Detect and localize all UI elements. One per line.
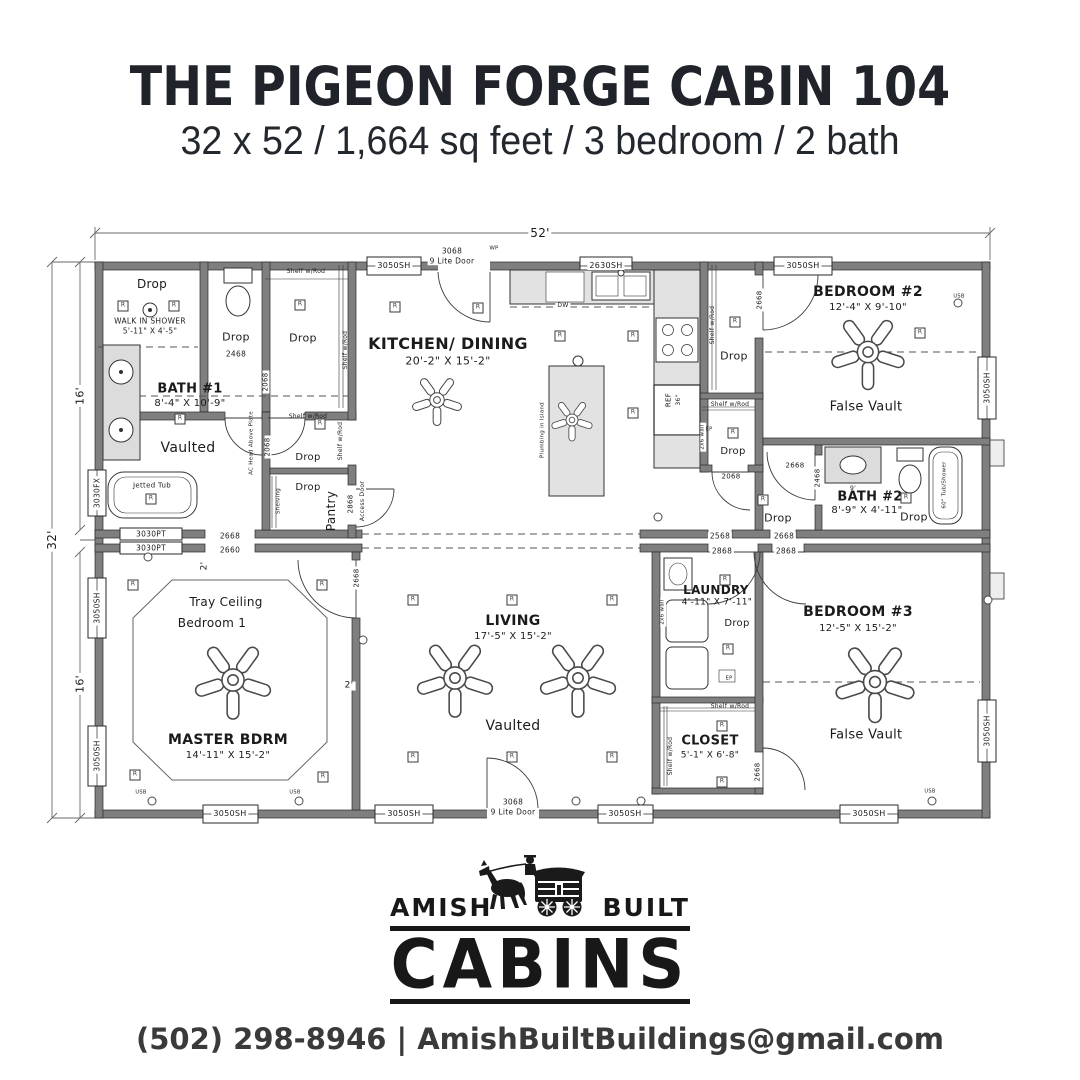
outlet-icon [954,299,963,308]
plan-label: 2468 [815,466,822,489]
recessed-light-icon: R [146,494,157,505]
plan-label: Access Door [360,479,366,523]
plan-label: REF [666,393,673,407]
plan-label: USB [289,791,300,796]
recessed-light-icon: R [915,328,926,339]
recessed-light-icon: R [720,575,731,586]
recessed-light-icon: R [728,428,739,439]
plan-label: 2068 [263,370,270,393]
plan-label: 60" Tub/Shower [942,461,948,508]
plan-label: BEDROOM #3 [803,605,913,619]
plan-label: 9 Lite Door [489,808,538,816]
plan-label: WP [489,246,498,252]
plan-label: LIVING [485,614,540,628]
plan-label: 2068 [265,435,272,458]
plan-label: 3050SH [375,262,412,270]
plan-label: 2' [343,682,356,691]
recessed-light-icon: R [315,419,326,430]
plan-label: USB [135,791,146,796]
plan-label: 8'-4" X 10'-9" [154,399,225,409]
plan-label: Bedroom 1 [178,617,246,629]
plan-label: 3050SH [93,738,101,773]
plan-label: BEDROOM #2 [813,285,923,299]
ceiling-fan-icon [416,643,494,717]
recessed-light-icon: R [169,301,180,312]
ceiling-fan-icon [194,645,272,719]
recessed-light-icon: R [758,495,769,506]
plan-label: Tray Ceiling [189,596,262,608]
plan-label: BATH #1 [157,383,222,396]
plan-label: 3050SH [211,810,248,818]
plan-label: Drop [295,483,320,493]
plan-label: Shelf w/Rod [711,704,750,710]
plan-label: 2668 [218,532,242,540]
plan-label: CLOSET [681,735,738,748]
plan-label: 3050SH [850,810,887,818]
plan-label: Jetted Tub [133,483,171,490]
recessed-light-icon: R [318,772,329,783]
recessed-light-icon: R [717,721,728,732]
plan-label: 9' [850,486,856,492]
plan-label: Pantry [325,491,337,531]
plan-label: 17'-5" X 15'-2" [474,632,552,642]
plan-label: Drop [724,619,749,629]
plan-label: 2668 [772,532,796,540]
plan-label: 3030PT [134,530,168,538]
outlet-icon [148,797,157,806]
outlet-icon [359,636,368,645]
recessed-light-icon: R [607,752,618,763]
plan-label: 5'-1" X 6'-8" [681,752,739,761]
outlet-icon [928,797,937,806]
recessed-light-icon: R [723,644,734,655]
plan-label: 12'-5" X 15'-2" [819,624,897,634]
recessed-light-icon: R [901,493,912,504]
plan-label: 52' [528,227,551,239]
plan-label: 3050SH [983,370,991,405]
recessed-light-icon: R [607,595,618,606]
plan-label: Shelf w/Rod [287,269,326,275]
recessed-light-icon: R [717,777,728,788]
plan-label: AC Head Above Plate [249,411,255,475]
plan-label: MASTER BDRM [168,733,288,747]
poster: THE PIGEON FORGE CABIN 104 32 x 52 / 1,6… [0,0,1080,1080]
plan-label: Vaulted [161,441,216,455]
ceiling-fan-icon [412,377,463,425]
plan-label: False Vault [830,729,903,742]
recessed-light-icon: R [628,408,639,419]
plan-label: Drop [295,453,320,463]
recessed-light-icon: R [507,752,518,763]
recessed-light-icon: R [317,580,328,591]
outlet-icon [144,553,153,562]
plan-label: 3030FX [93,476,101,510]
recessed-light-icon: R [175,414,186,425]
plan-label: 2668 [354,566,361,589]
plan-label: Drop [764,513,792,524]
outlet-icon [295,797,304,806]
ceiling-fan-icon [831,318,906,389]
plan-label: 2668 [755,760,762,783]
logo-word-cabins: CABINS [391,931,690,999]
plan-label: 2x6 wall [660,597,666,626]
plan-label: 14'-11" X 15'-2" [186,751,270,761]
plan-label: Drop [289,333,317,344]
plan-label: 2630SH [587,262,624,270]
ceiling-fan-icon [539,643,617,717]
recessed-light-icon: R [130,770,141,781]
plan-label: 20'-2" X 15'-2" [405,356,490,367]
plan-label: Shelf w/Rod [343,331,349,370]
logo-top-row: AMISH [390,854,690,924]
plan-label: 12'-4" X 9'-10" [829,303,907,313]
outlet-icon [654,513,663,522]
logo-word-built: BUILT [602,893,690,922]
outlet-icon [572,797,581,806]
horse-and-wagon-icon [477,850,603,927]
recessed-light-icon: R [473,303,484,314]
outlet-icon [984,596,993,605]
plan-label: DW [555,303,570,309]
plan-label: USB [924,790,935,795]
brand-logo: AMISH [0,854,1080,1004]
recessed-light-icon: R [408,595,419,606]
plan-label: 3030PT [134,544,168,552]
plan-label: Shelf w/Rod [710,306,716,345]
plan-label: 3050SH [606,810,643,818]
plan-label: 2668 [785,463,804,470]
plan-label: 2568 [708,532,732,540]
plan-label: Plumbing in Island [540,402,546,458]
outlet-icon [637,797,646,806]
ceiling-fan-icon [835,646,916,723]
plan-label: 3050SH [983,713,991,748]
plan-label: 2868 [774,547,798,555]
plan-label: 5'-11" X 4'-5" [123,327,177,335]
plan-label: False Vault [830,401,903,414]
recessed-light-icon: R [730,317,741,328]
plan-label: Drop [720,351,748,362]
plan-label: 2668 [757,288,764,311]
plan-label: 32' [46,528,58,551]
plan-label: 3050SH [93,590,101,625]
plan-label: Shelving [276,488,282,514]
plan-label: EP [726,677,733,682]
contact-line: (502) 298-8946 | AmishBuiltBuildings@gma… [0,1022,1080,1056]
plan-label: Drop [720,447,745,457]
plan-label: 2068 [719,474,742,481]
plan-label: EP [706,428,713,433]
plan-label: BATH #2 [837,491,902,504]
plan-label: 2868 [348,492,355,515]
plan-label: Shelf w/Rod [338,422,344,461]
plan-label: 3068 [501,798,525,806]
plan-label: 2868 [710,547,734,555]
plan-label: 16' [75,385,86,407]
plan-label: 3050SH [784,262,821,270]
plan-label: LAUNDRY [683,584,749,596]
plan-label: Shelf w/Rod [711,402,750,408]
plan-label: 8'-9" X 4'-11" [831,506,902,516]
recessed-light-icon: R [555,331,566,342]
plan-label: Shelf w/Rod [668,737,674,776]
plan-label: 36" [676,394,682,405]
plan-label: 3050SH [385,810,422,818]
plan-label: KITCHEN/ DINING [368,336,528,352]
plan-label: 9 Lite Door [428,257,477,265]
recessed-light-icon: R [295,300,306,311]
plan-label: 2660 [218,546,242,554]
recessed-light-icon: R [507,595,518,606]
plan-label: Drop [222,332,250,343]
plan-label: 4'-11" X 7'-11" [682,599,752,608]
plan-label: Vaulted [486,719,541,733]
plan-label: Drop [900,512,928,523]
recessed-light-icon: R [628,331,639,342]
plan-label: Drop [137,278,167,290]
plan-label: 16' [75,673,86,695]
recessed-light-icon: R [128,580,139,591]
plan-label: 2468 [226,350,246,358]
recessed-light-icon: R [408,752,419,763]
recessed-light-icon: R [118,301,129,312]
plan-label: 2' [201,560,210,573]
plan-label: 3068 [440,247,464,255]
recessed-light-icon: R [390,302,401,313]
plan-label: WALK IN SHOWER [114,317,186,325]
